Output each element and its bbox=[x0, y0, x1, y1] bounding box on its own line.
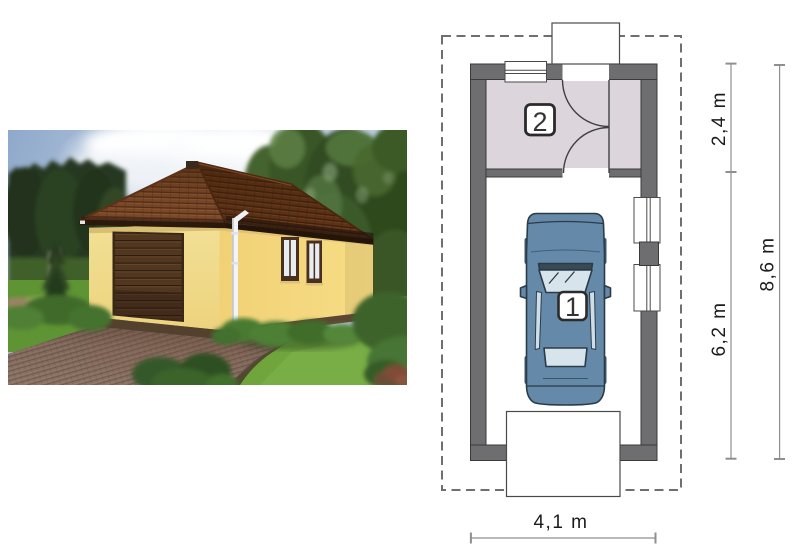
svg-text:1: 1 bbox=[565, 292, 580, 322]
svg-text:2,4 m: 2,4 m bbox=[709, 91, 730, 146]
svg-text:2: 2 bbox=[532, 107, 547, 137]
svg-text:8,6 m: 8,6 m bbox=[758, 236, 779, 291]
svg-text:6,2 m: 6,2 m bbox=[709, 301, 730, 356]
svg-text:4,1 m: 4,1 m bbox=[533, 512, 588, 533]
